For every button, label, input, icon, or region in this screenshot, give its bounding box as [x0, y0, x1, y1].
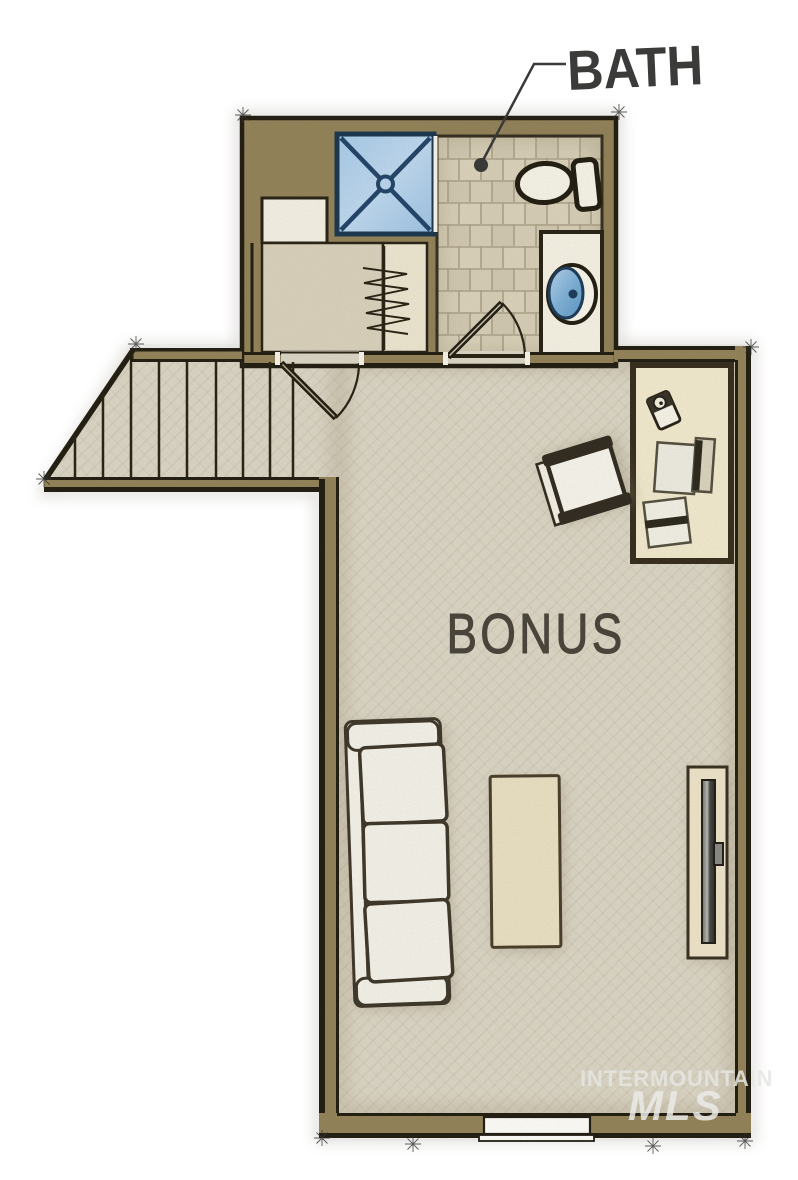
svg-text:BATH: BATH [566, 33, 705, 102]
svg-text:MLS: MLS [628, 1082, 723, 1129]
